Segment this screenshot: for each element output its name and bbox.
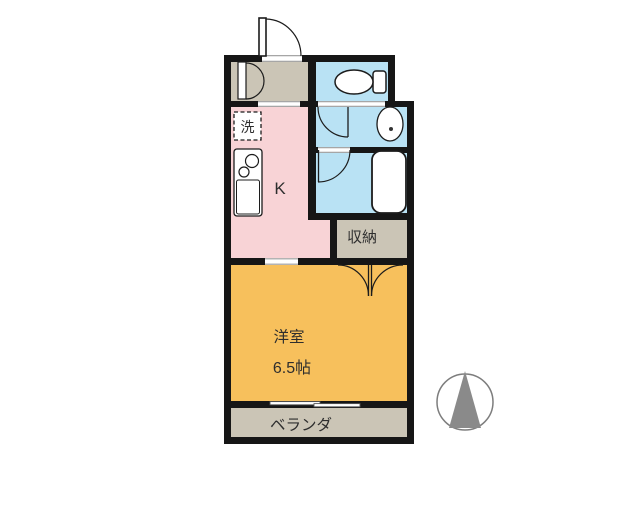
kitchen-label: K — [274, 179, 286, 198]
bathtub-fixture — [372, 151, 406, 213]
toilet-fixture — [335, 70, 386, 94]
floor-plan-drawing: 洗 K 収納 洋室 6.5帖 ベランダ — [0, 0, 640, 517]
entrance-door — [259, 18, 301, 56]
storage-closet-label: 収納 — [347, 229, 377, 246]
wall-kitchen-divider — [308, 62, 316, 220]
main-room-size-label: 6.5帖 — [273, 359, 311, 377]
wall-toilet-right — [388, 55, 395, 107]
kitchen-counter-fixture — [234, 149, 262, 216]
opening-genkan-kitchen — [258, 101, 300, 107]
opening-toilet-doorway — [318, 101, 385, 107]
wall-top — [224, 55, 395, 62]
wall-room-top — [224, 258, 414, 265]
compass-north-icon — [437, 371, 493, 430]
main-room-area — [231, 265, 407, 401]
opening-kitchen-room — [265, 258, 298, 265]
opening-entrance — [262, 55, 302, 62]
wall-closet-left — [330, 213, 337, 265]
wall-left — [224, 55, 231, 444]
wall-bathroom-bottom — [308, 213, 414, 220]
opening-bathroom-doorway — [318, 147, 350, 153]
floor-plan-page: 洗 K 収納 洋室 6.5帖 ベランダ — [0, 0, 640, 517]
laundry-label: 洗 — [241, 119, 255, 135]
main-room-label: 洋室 — [273, 328, 304, 346]
wall-bottom — [224, 437, 414, 444]
washbasin-fixture — [377, 107, 403, 141]
balcony-label: ベランダ — [270, 416, 332, 434]
